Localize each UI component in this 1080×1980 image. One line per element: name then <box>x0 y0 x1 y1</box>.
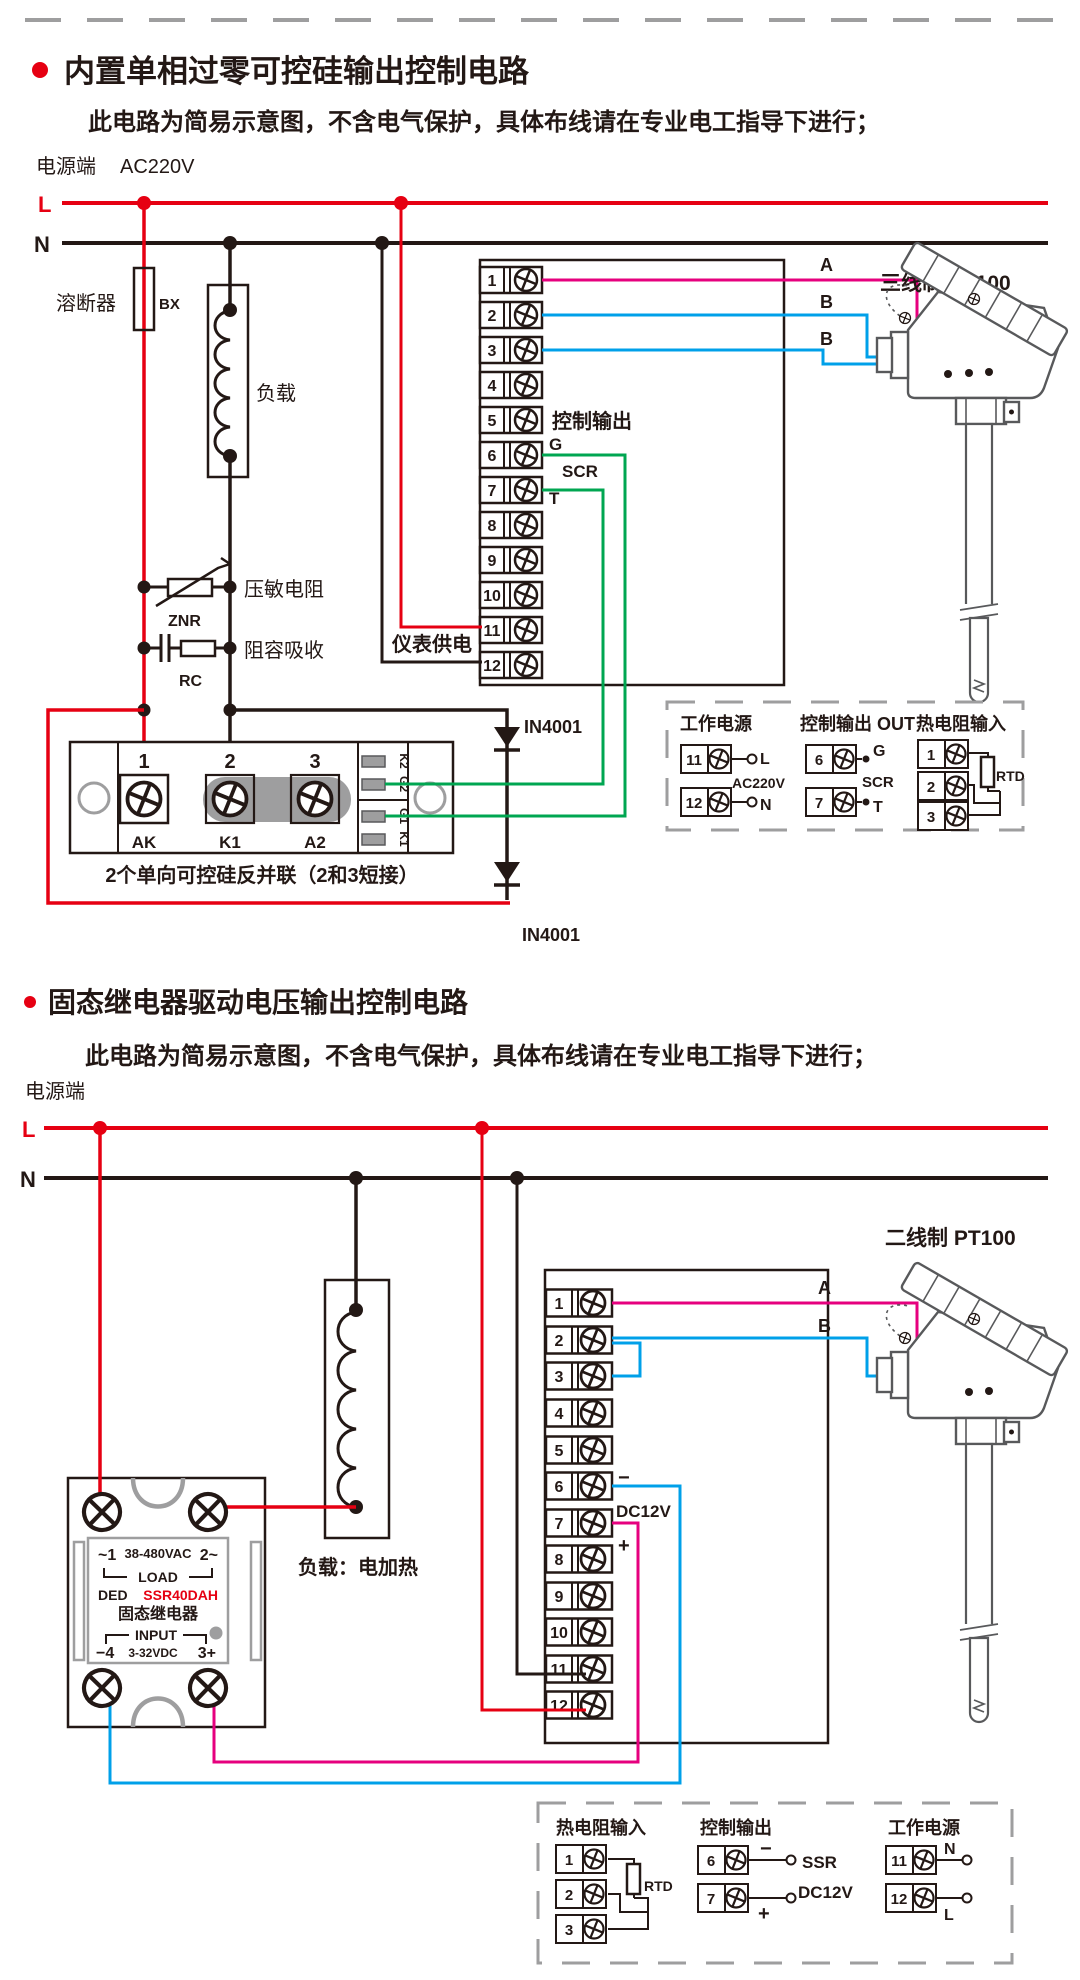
control-output-label: 控制输出 <box>552 409 632 433</box>
fuse-code: BX <box>159 296 180 313</box>
svg-text:1: 1 <box>565 1852 573 1869</box>
svg-text:A2: A2 <box>304 833 326 852</box>
supply-neutral-wire <box>382 243 482 662</box>
line-n-label: N <box>34 232 50 257</box>
svg-text:8: 8 <box>555 1552 564 1569</box>
svg-text:12: 12 <box>550 1698 568 1715</box>
svg-text:N: N <box>944 1841 956 1858</box>
svg-text:7: 7 <box>707 1891 715 1908</box>
load-box-2 <box>325 1280 389 1538</box>
svg-text:6: 6 <box>707 1853 715 1870</box>
svg-text:G: G <box>873 743 885 760</box>
varistor-code: ZNR <box>168 613 201 630</box>
svg-text:12: 12 <box>686 795 703 812</box>
svg-text:6: 6 <box>815 752 823 769</box>
svg-text:SSR: SSR <box>802 1853 837 1872</box>
svg-text:5: 5 <box>555 1443 564 1460</box>
svg-text:4: 4 <box>555 1406 564 1423</box>
svg-text:+: + <box>758 1903 770 1925</box>
svg-text:固态继电器: 固态继电器 <box>118 1604 199 1623</box>
svg-text:3: 3 <box>565 1922 573 1939</box>
legend-section1: 工作电源 11 12 L AC220V N 控制输出 OUT 6 7 G SCR… <box>667 702 1025 830</box>
wire-label-b1: B <box>820 292 833 312</box>
section1-bullet-icon <box>32 62 48 78</box>
section2-bullet-icon <box>24 996 36 1008</box>
legend2-rtd-title: 热电阻输入 <box>556 1817 646 1838</box>
svg-text:3: 3 <box>555 1369 564 1386</box>
rtd-jumper-wire <box>612 1343 640 1376</box>
svg-text:K1: K1 <box>397 831 411 847</box>
svg-text:1: 1 <box>138 751 149 773</box>
svg-text:11: 11 <box>891 1853 907 1870</box>
section2-subtitle: 此电路为简易示意图，不含电气保护，具体布线请在专业电工指导下进行； <box>85 1042 877 1070</box>
t-label: T <box>549 489 560 508</box>
sensor-label-2wire: 二线制 PT100 <box>885 1226 1016 1250</box>
section2-title: 固态继电器驱动电压输出控制电路 <box>48 986 469 1018</box>
varistor-label: 压敏电阻 <box>244 578 324 601</box>
svg-text:2: 2 <box>565 1887 573 1904</box>
svg-text:2~: 2~ <box>200 1547 218 1564</box>
scr-label: SCR <box>562 462 598 481</box>
svg-text:1: 1 <box>555 1296 564 1313</box>
svg-text:3+: 3+ <box>198 1645 216 1662</box>
svg-text:L: L <box>760 751 770 768</box>
meter-supply-label: 仪表供电 <box>391 632 472 656</box>
svg-text:12: 12 <box>483 658 501 675</box>
line-l-label: L <box>38 192 51 217</box>
svg-text:2: 2 <box>555 1333 564 1350</box>
svg-text:DED: DED <box>98 1587 128 1603</box>
gate-label: G <box>549 435 562 454</box>
load-coil-2 <box>338 1312 356 1507</box>
line-n-label-2: N <box>20 1167 36 1192</box>
svg-text:−: − <box>760 1838 772 1860</box>
diode2-icon <box>494 862 520 882</box>
terminal-strip-2: 1 2 3 4 5 6 7 8 9 10 11 12 <box>546 1287 612 1720</box>
legend2-power-title: 工作电源 <box>888 1817 960 1838</box>
svg-text:2: 2 <box>224 751 235 773</box>
svg-text:K2: K2 <box>397 753 411 769</box>
svg-text:9: 9 <box>555 1589 564 1606</box>
svg-text:SCR: SCR <box>862 774 894 791</box>
load-label: 负载 <box>256 382 296 405</box>
svg-text:7: 7 <box>488 483 497 500</box>
svg-text:38-480VAC: 38-480VAC <box>125 1546 193 1561</box>
rc-resistor-symbol <box>181 641 215 656</box>
svg-text:10: 10 <box>483 588 501 605</box>
svg-text:9: 9 <box>488 553 497 570</box>
legend1-output-title: 控制输出 OUT <box>800 713 915 734</box>
legend2-output-title: 控制输出 <box>700 1817 772 1838</box>
svg-text:~1: ~1 <box>98 1547 116 1564</box>
svg-text:11: 11 <box>551 1662 568 1679</box>
load-coil <box>215 311 230 456</box>
wire-label-a-2: A <box>818 1278 831 1298</box>
svg-text:INPUT: INPUT <box>135 1627 177 1643</box>
svg-text:7: 7 <box>815 795 823 812</box>
wire-label-a: A <box>820 255 833 275</box>
diode1-icon <box>494 727 520 747</box>
svg-text:AC220V: AC220V <box>732 775 786 791</box>
svg-text:4: 4 <box>488 378 497 395</box>
rc-code: RC <box>179 673 203 690</box>
section1: 内置单相过零可控硅输出控制电路 此电路为简易示意图，不含电气保护，具体布线请在专… <box>32 54 1068 945</box>
svg-text:SSR40DAH: SSR40DAH <box>143 1587 218 1603</box>
section1-title: 内置单相过零可控硅输出控制电路 <box>64 54 530 89</box>
section2: 固态继电器驱动电压输出控制电路 此电路为简易示意图，不含电气保护，具体布线请在专… <box>20 986 1068 1963</box>
svg-text:RTD: RTD <box>996 768 1025 784</box>
svg-text:11: 11 <box>484 623 501 640</box>
power-terminal-label-2: 电源端 <box>25 1080 85 1103</box>
svg-text:2: 2 <box>488 308 497 325</box>
plus-label: + <box>618 1535 630 1557</box>
diode2-label: IN4001 <box>522 925 580 945</box>
wiring-diagram-page: 内置单相过零可控硅输出控制电路 此电路为简易示意图，不含电气保护，具体布线请在专… <box>0 0 1080 1980</box>
terminal-strip-1: 1 2 3 4 5 6 7 8 9 10 11 12 <box>480 266 542 680</box>
legend1-rtd-title: 热电阻输入 <box>916 713 1006 734</box>
legend1-power-title: 工作电源 <box>680 713 752 734</box>
svg-text:1: 1 <box>927 747 935 764</box>
svg-text:−4: −4 <box>96 1645 114 1662</box>
load-label-2: 负载：电加热 <box>298 1555 418 1579</box>
svg-text:AK: AK <box>132 833 157 852</box>
wire-label-b-2: B <box>818 1316 831 1336</box>
power-terminal-label: 电源端 <box>36 155 96 178</box>
minus-label: − <box>618 1467 630 1489</box>
svg-text:10: 10 <box>550 1625 568 1642</box>
rc-label: 阻容吸收 <box>244 639 324 662</box>
svg-text:5: 5 <box>488 413 497 430</box>
svg-text:6: 6 <box>488 448 497 465</box>
voltage-label: AC220V <box>120 156 195 178</box>
supply-live-wire <box>401 203 482 627</box>
svg-text:11: 11 <box>686 752 702 769</box>
svg-text:T: T <box>873 799 883 816</box>
svg-text:RTD: RTD <box>644 1878 673 1894</box>
svg-text:LOAD: LOAD <box>138 1569 178 1585</box>
svg-text:L: L <box>944 1907 954 1924</box>
wire-label-b2: B <box>820 329 833 349</box>
dc12v-label: DC12V <box>616 1502 671 1521</box>
legend-section2: 热电阻输入 1 2 3 RTD 控制输出 6 7 − + SSR DC12V 工… <box>538 1803 1012 1963</box>
line-l-label-2: L <box>22 1117 35 1142</box>
wiring-diagram-svg: 内置单相过零可控硅输出控制电路 此电路为简易示意图，不含电气保护，具体布线请在专… <box>0 0 1080 1980</box>
svg-text:3-32VDC: 3-32VDC <box>128 1646 178 1660</box>
fuse-label: 溶断器 <box>56 292 116 315</box>
svg-text:3: 3 <box>309 751 320 773</box>
svg-text:N: N <box>760 797 772 814</box>
svg-text:8: 8 <box>488 518 497 535</box>
scr-module-caption: 2个单向可控硅反并联（2和3短接） <box>105 863 418 887</box>
svg-text:3: 3 <box>488 343 497 360</box>
svg-text:12: 12 <box>891 1891 908 1908</box>
diode1-label: IN4001 <box>524 717 582 737</box>
section1-subtitle: 此电路为简易示意图，不含电气保护，具体布线请在专业电工指导下进行； <box>88 108 880 136</box>
svg-text:K1: K1 <box>219 833 241 852</box>
svg-text:DC12V: DC12V <box>798 1883 853 1902</box>
svg-text:6: 6 <box>555 1479 564 1496</box>
svg-text:3: 3 <box>927 809 935 826</box>
svg-text:2: 2 <box>927 779 935 796</box>
svg-text:1: 1 <box>488 273 497 290</box>
svg-text:7: 7 <box>555 1516 564 1533</box>
